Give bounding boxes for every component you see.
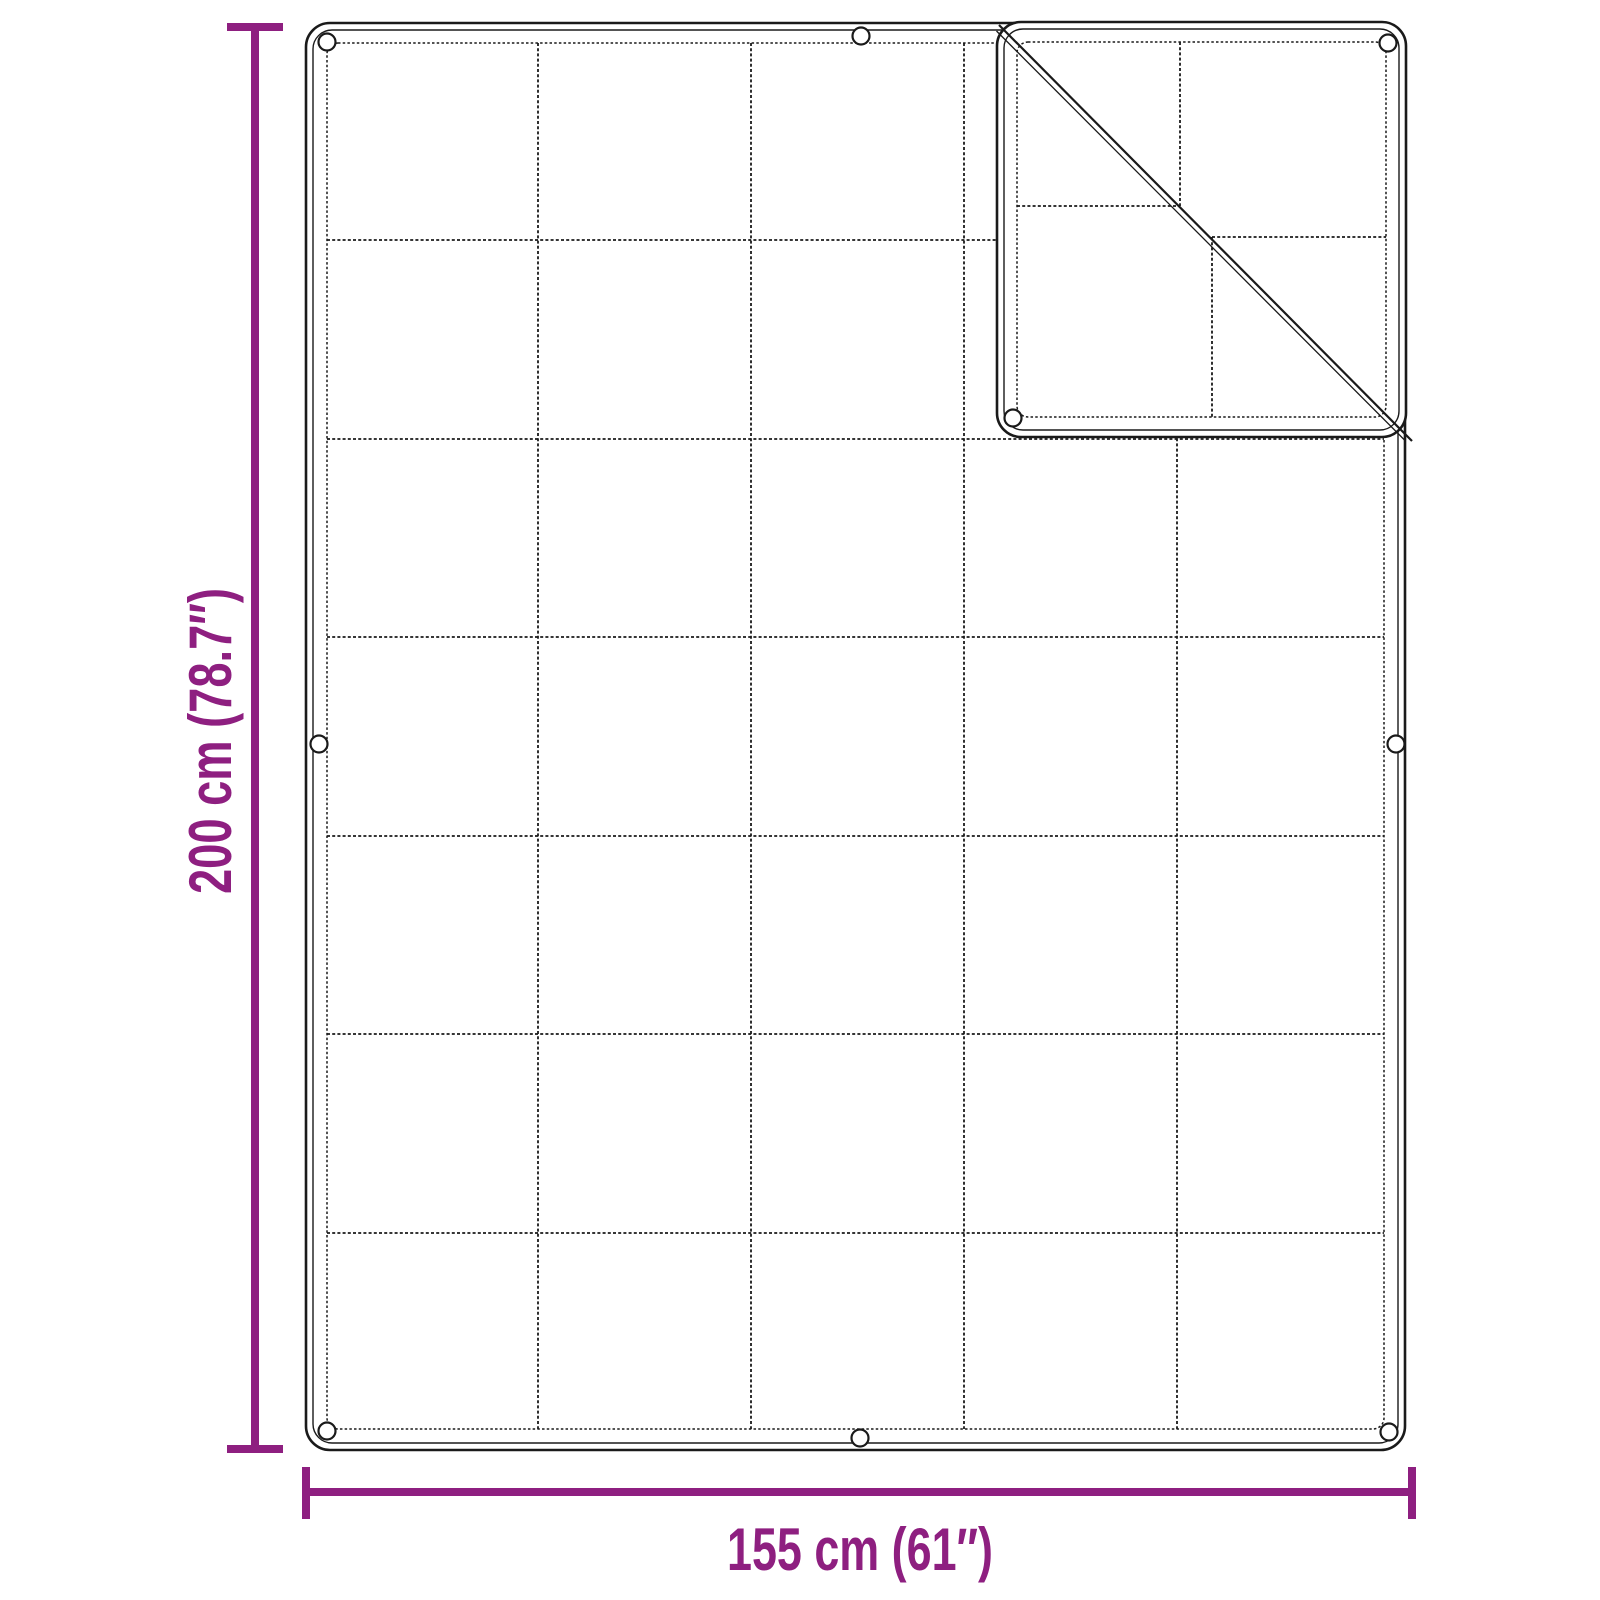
- grommet-flap-top-right: [1380, 35, 1397, 52]
- grommet-bottom-right: [1381, 1424, 1398, 1441]
- height-dimension: 200 cm (78.7″): [177, 27, 283, 1449]
- folded-corner-flap: [997, 22, 1413, 441]
- width-dimension-label: 155 cm (61″): [727, 1516, 993, 1583]
- grommet-top-left: [319, 34, 336, 51]
- grommet-right-middle: [1388, 736, 1405, 753]
- height-dimension-label: 200 cm (78.7″): [177, 588, 244, 894]
- width-dimension: 155 cm (61″): [306, 1467, 1412, 1583]
- grommet-bottom-middle: [852, 1430, 869, 1447]
- grommet-bottom-left: [319, 1423, 336, 1440]
- grommet-top-middle: [853, 28, 870, 45]
- blanket-drawing: [306, 22, 1412, 1450]
- product-dimension-image: 200 cm (78.7″) 155 cm (61″): [0, 0, 1600, 1600]
- grommet-flap-bottom-left: [1005, 410, 1022, 427]
- grommet-left-middle: [311, 736, 328, 753]
